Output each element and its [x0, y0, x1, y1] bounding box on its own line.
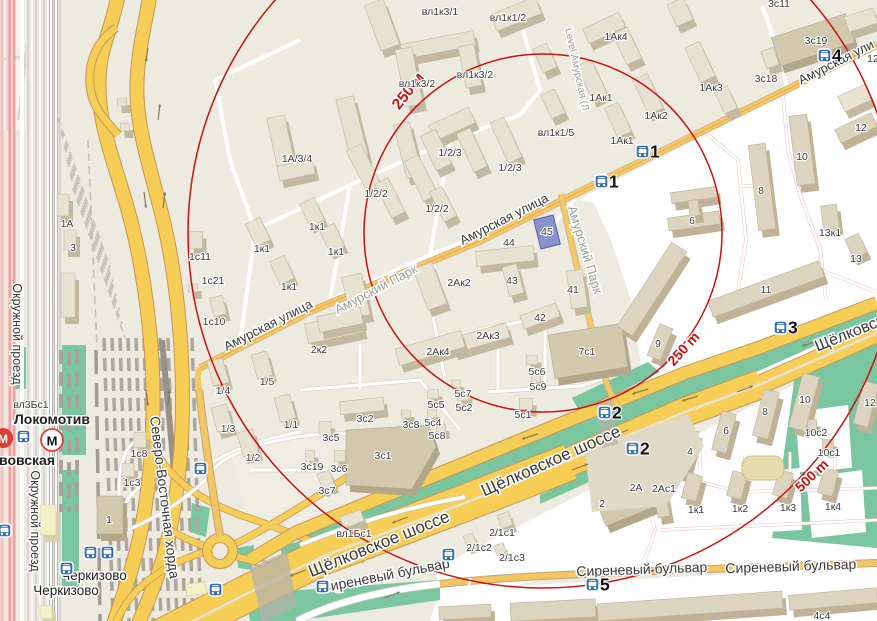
svg-text:2Ак3: 2Ак3	[476, 330, 499, 342]
svg-text:5с4: 5с4	[425, 417, 442, 429]
svg-text:3с19: 3с19	[301, 461, 324, 473]
svg-text:1/1: 1/1	[284, 419, 299, 431]
svg-text:1Ак2: 1Ак2	[644, 110, 667, 122]
svg-text:3с5: 3с5	[323, 432, 340, 444]
svg-text:вовская: вовская	[0, 452, 55, 468]
svg-text:М: М	[47, 434, 58, 449]
svg-text:3с7: 3с7	[319, 485, 336, 497]
svg-text:1: 1	[609, 172, 619, 192]
svg-text:Окружной проезд: Окружной проезд	[10, 283, 24, 385]
svg-text:2/1с2: 2/1с2	[466, 542, 492, 554]
svg-text:вл3Бс1: вл3Бс1	[13, 399, 48, 411]
svg-text:вл1к1/5: вл1к1/5	[538, 127, 575, 139]
svg-text:5: 5	[600, 575, 610, 595]
svg-text:4: 4	[687, 446, 693, 458]
svg-text:1к1: 1к1	[309, 221, 325, 233]
svg-text:12: 12	[855, 122, 867, 134]
svg-text:1с10: 1с10	[203, 316, 226, 328]
svg-text:вл1к3/2: вл1к3/2	[399, 78, 436, 90]
svg-text:2Ак4: 2Ак4	[426, 346, 449, 358]
svg-text:2: 2	[599, 498, 605, 510]
svg-text:1/2/3: 1/2/3	[438, 147, 462, 159]
svg-text:10: 10	[799, 394, 811, 406]
svg-text:5с8: 5с8	[429, 430, 446, 442]
svg-text:2/1с3: 2/1с3	[499, 552, 525, 564]
svg-text:М: М	[0, 432, 8, 446]
svg-text:5с5: 5с5	[428, 399, 445, 411]
svg-text:1к1: 1к1	[328, 246, 344, 258]
svg-text:вл1к1/2: вл1к1/2	[490, 12, 527, 24]
svg-text:4с4: 4с4	[814, 610, 831, 621]
svg-text:3с6: 3с6	[331, 463, 348, 475]
svg-text:5с9: 5с9	[530, 381, 547, 393]
svg-text:1: 1	[106, 514, 112, 526]
svg-text:1с11: 1с11	[189, 251, 211, 263]
svg-text:1с8: 1с8	[131, 448, 148, 460]
svg-text:1/2/2: 1/2/2	[364, 188, 388, 200]
svg-text:6: 6	[723, 425, 729, 437]
svg-text:1Ак4: 1Ак4	[604, 31, 627, 43]
svg-text:12: 12	[867, 53, 877, 65]
svg-text:1с3: 1с3	[124, 477, 141, 489]
svg-text:Черкизово: Черкизово	[33, 583, 99, 598]
svg-text:Окружной проезд: Окружной проезд	[28, 470, 42, 572]
svg-text:2: 2	[612, 403, 622, 423]
svg-text:44: 44	[503, 237, 515, 249]
svg-text:1/2/3: 1/2/3	[498, 162, 522, 174]
svg-text:1Ак1: 1Ак1	[589, 92, 612, 104]
svg-text:3с19: 3с19	[805, 35, 828, 47]
svg-text:1Ак3: 1Ак3	[699, 82, 722, 94]
svg-text:11: 11	[761, 284, 772, 296]
svg-text:вл1Бс1: вл1Бс1	[336, 528, 371, 540]
svg-text:5с6: 5с6	[529, 366, 546, 378]
svg-text:1/3: 1/3	[221, 423, 236, 435]
svg-text:7с1: 7с1	[579, 346, 596, 358]
svg-text:1к4: 1к4	[825, 501, 841, 513]
svg-text:3: 3	[70, 242, 76, 254]
svg-text:8: 8	[758, 185, 764, 197]
svg-text:1/5: 1/5	[260, 376, 275, 388]
svg-text:4: 4	[832, 46, 842, 66]
svg-text:3: 3	[788, 318, 798, 338]
svg-text:вл1к3/2: вл1к3/2	[457, 69, 494, 81]
svg-text:10с2: 10с2	[805, 427, 828, 439]
svg-text:13к1: 13к1	[819, 227, 841, 239]
svg-text:12: 12	[864, 397, 876, 409]
svg-text:1А/3/4: 1А/3/4	[282, 153, 313, 165]
svg-text:2А: 2А	[630, 482, 643, 494]
svg-text:2Ас1: 2Ас1	[652, 483, 676, 495]
svg-text:43: 43	[506, 275, 518, 287]
svg-text:3с8: 3с8	[403, 419, 420, 431]
svg-text:41: 41	[567, 284, 579, 296]
svg-text:3с11: 3с11	[768, 0, 790, 10]
svg-text:1с21: 1с21	[202, 275, 225, 287]
svg-text:2к2: 2к2	[311, 344, 327, 356]
svg-text:5с7: 5с7	[455, 388, 472, 400]
svg-text:1к1: 1к1	[281, 281, 297, 293]
svg-text:1к2: 1к2	[732, 503, 748, 515]
svg-text:1Ак1: 1Ак1	[610, 135, 633, 147]
svg-text:1: 1	[650, 142, 660, 162]
svg-text:вл1к3/1: вл1к3/1	[422, 6, 459, 18]
svg-text:1к1: 1к1	[688, 504, 704, 516]
svg-text:13: 13	[850, 253, 862, 265]
svg-text:1/2/2: 1/2/2	[425, 203, 449, 215]
svg-text:2: 2	[640, 439, 650, 459]
svg-text:5с2: 5с2	[456, 402, 473, 414]
svg-text:5с1: 5с1	[515, 409, 532, 421]
svg-text:6: 6	[689, 215, 695, 227]
svg-text:1к1: 1к1	[254, 243, 270, 255]
svg-text:10с1: 10с1	[818, 447, 841, 459]
svg-text:9: 9	[655, 338, 661, 350]
svg-text:42: 42	[534, 312, 546, 324]
svg-text:3с2: 3с2	[357, 413, 374, 425]
svg-text:8: 8	[762, 406, 768, 418]
svg-text:1/4: 1/4	[216, 385, 231, 397]
svg-text:Локомотив: Локомотив	[14, 411, 90, 427]
svg-text:10: 10	[796, 151, 808, 163]
svg-text:3с1: 3с1	[375, 450, 392, 462]
svg-text:1/2: 1/2	[246, 452, 261, 464]
svg-text:1к3: 1к3	[780, 502, 796, 514]
svg-text:3с18: 3с18	[755, 73, 778, 85]
svg-text:45: 45	[541, 226, 553, 238]
svg-text:2Ак2: 2Ак2	[447, 277, 470, 289]
svg-text:1А: 1А	[61, 218, 74, 230]
svg-text:2/1с1: 2/1с1	[489, 527, 515, 539]
